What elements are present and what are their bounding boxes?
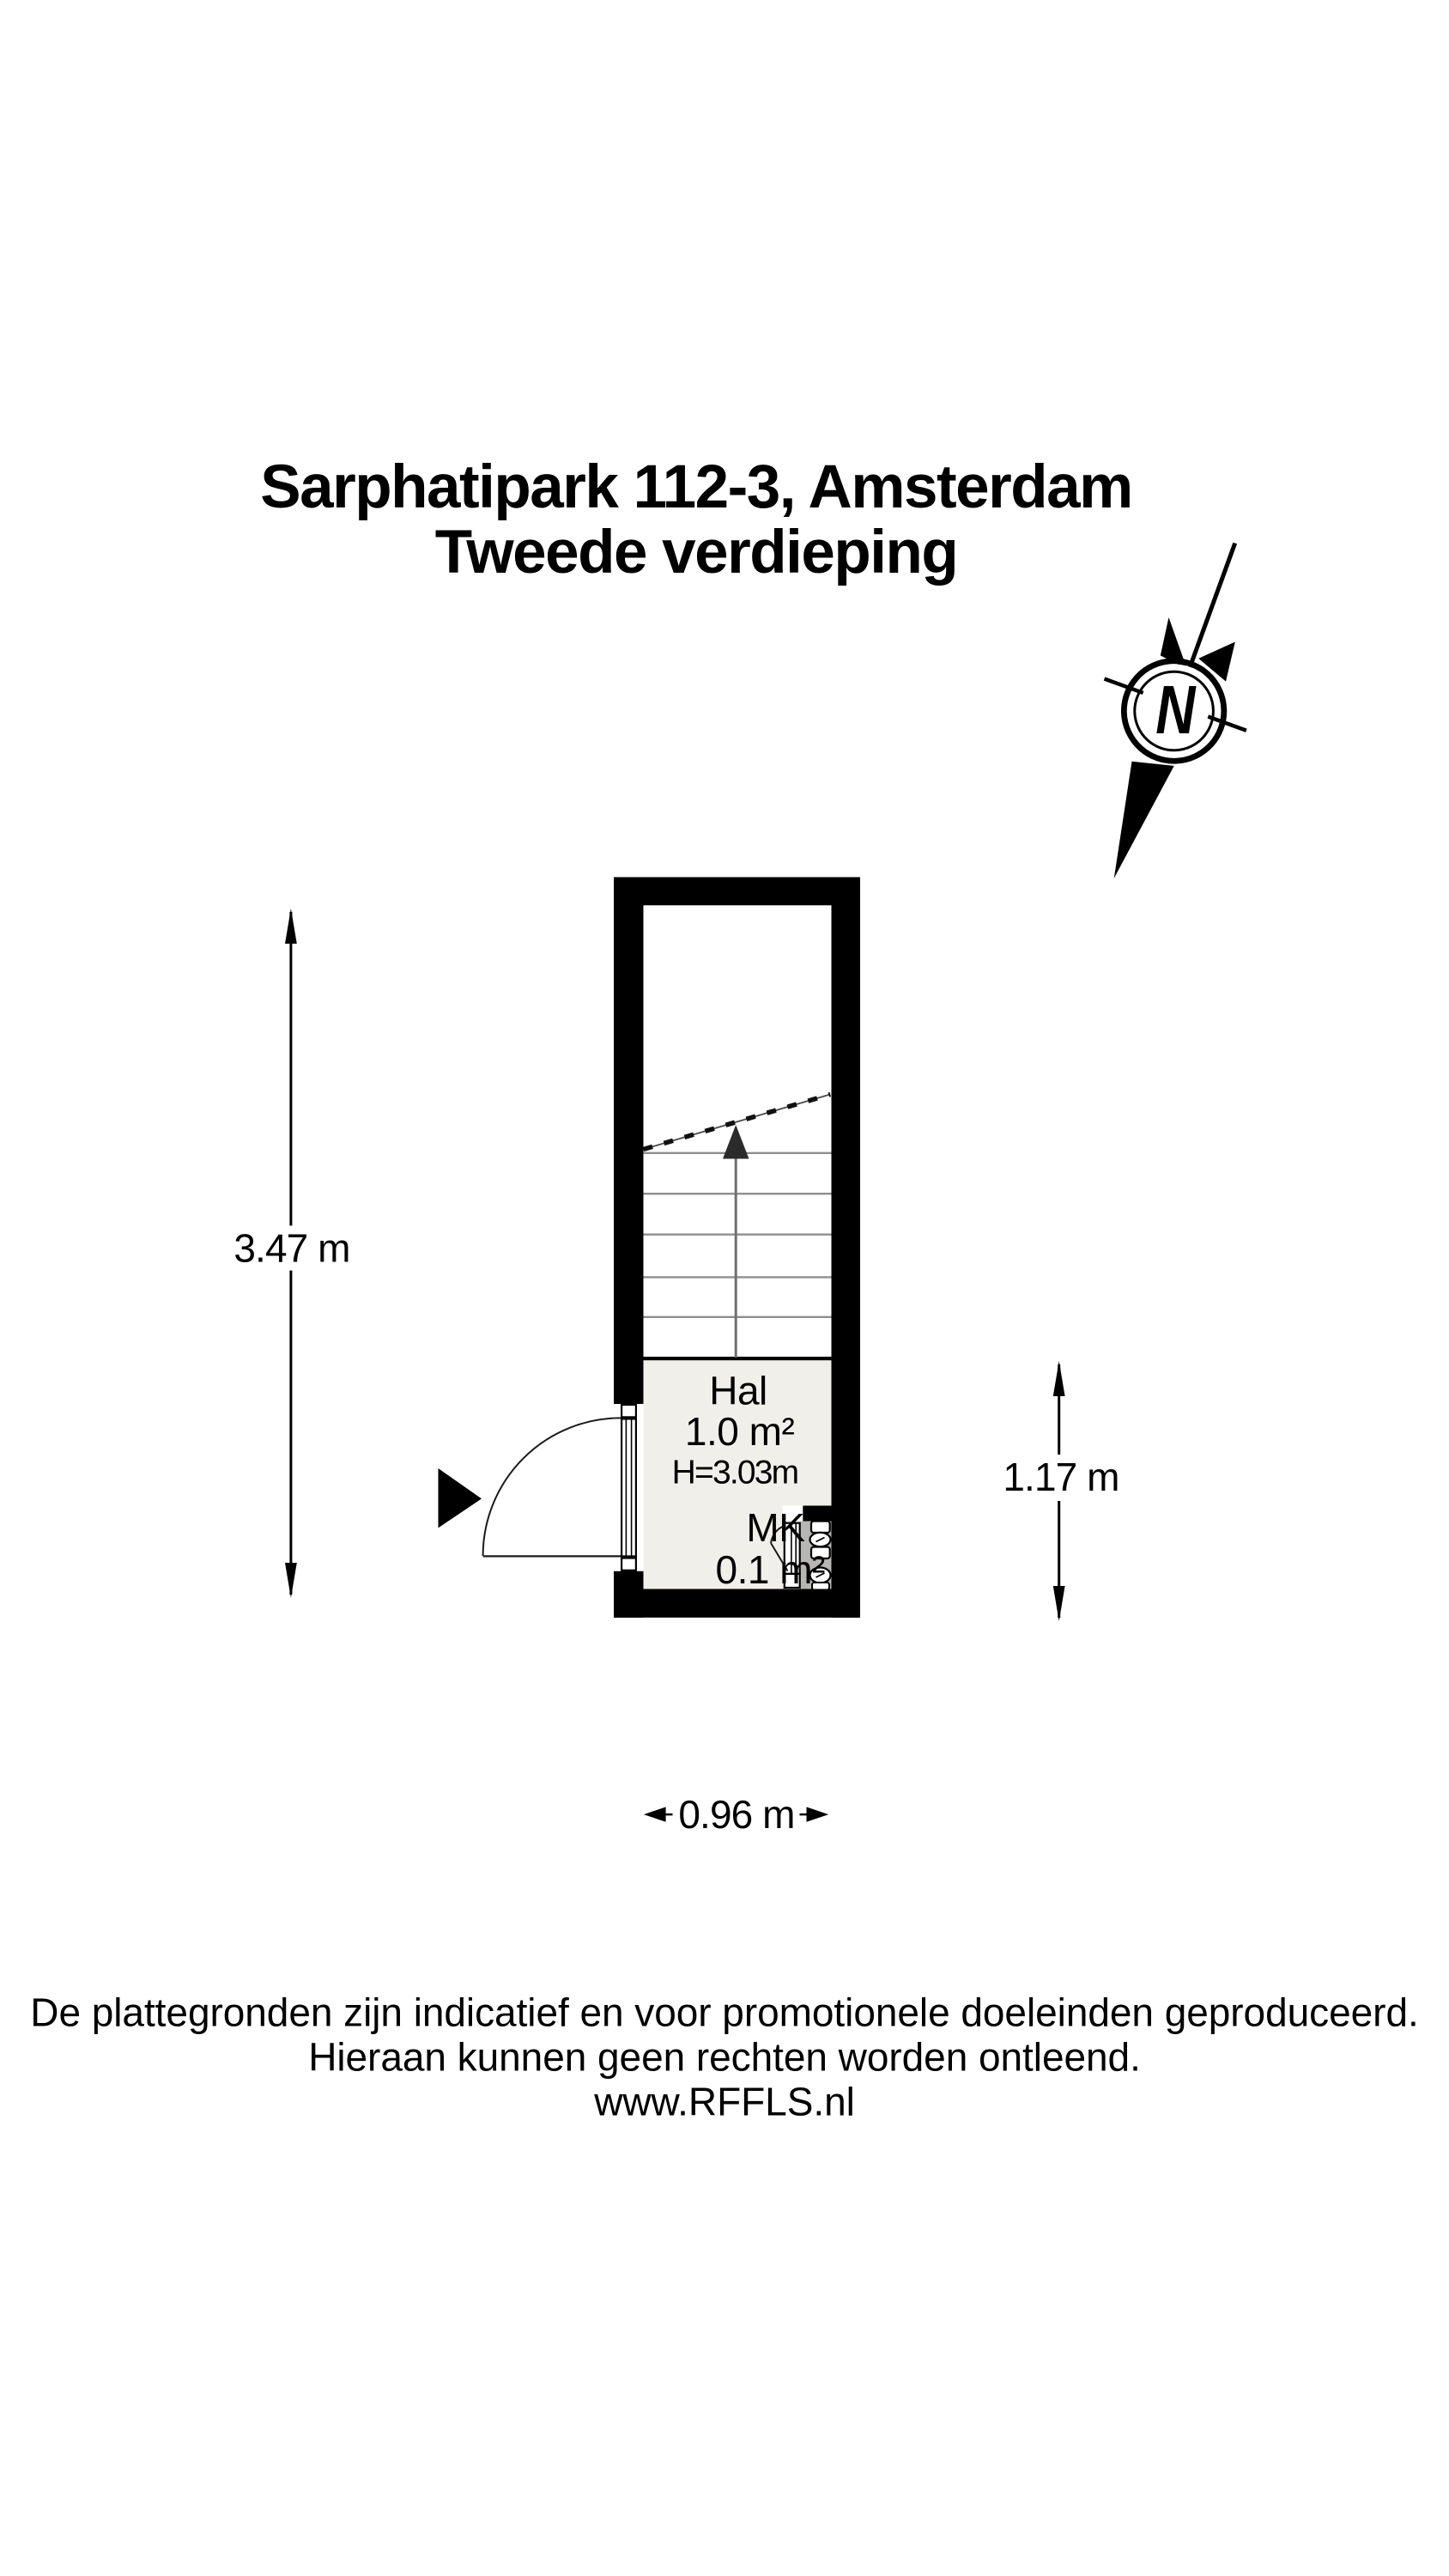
svg-text:3.47 m: 3.47 m [233, 1226, 349, 1271]
svg-text:0.1 m²: 0.1 m² [716, 1547, 826, 1592]
svg-text:De plattegronden zijn indicati: De plattegronden zijn indicatief en voor… [30, 1990, 1418, 2035]
svg-text:1.0 m²: 1.0 m² [685, 1409, 795, 1454]
svg-text:0.96 m: 0.96 m [678, 1792, 794, 1837]
svg-text:Sarphatipark 112-3, Amsterdam: Sarphatipark 112-3, Amsterdam [260, 453, 1131, 521]
svg-text:MK: MK [746, 1505, 805, 1550]
svg-text:1.17 m: 1.17 m [1003, 1455, 1119, 1499]
svg-text:N: N [1155, 671, 1197, 748]
svg-text:www.RFFLS.nl: www.RFFLS.nl [593, 2080, 855, 2124]
svg-text:H=3.03m: H=3.03m [672, 1455, 798, 1492]
svg-text:Hieraan kunnen geen rechten wo: Hieraan kunnen geen rechten worden ontle… [308, 2035, 1141, 2080]
svg-text:Tweede verdieping: Tweede verdieping [435, 519, 957, 586]
svg-text:Hal: Hal [709, 1369, 767, 1413]
